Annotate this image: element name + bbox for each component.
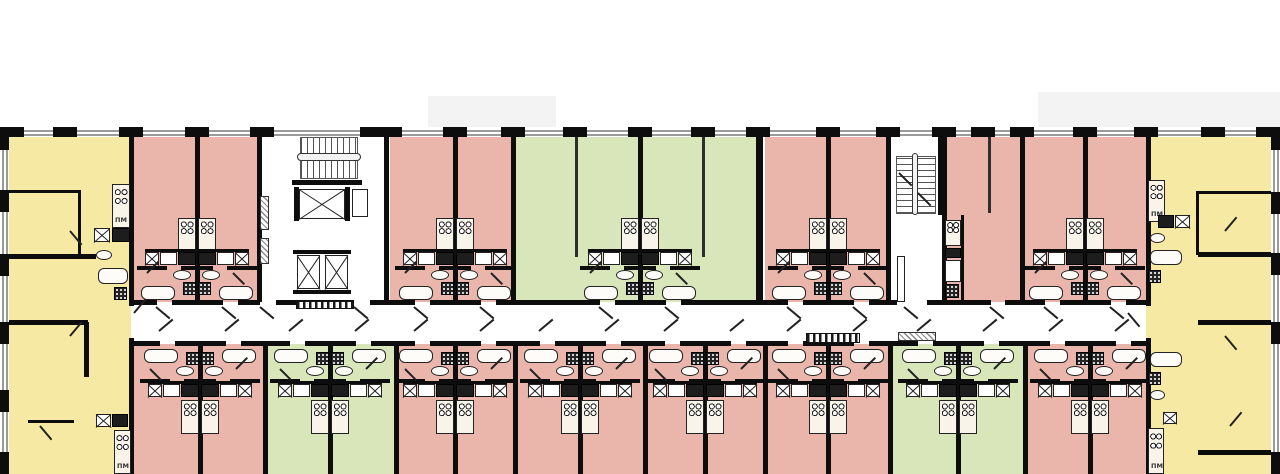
kitchen-cabinet-icon [418, 384, 435, 397]
stove-icon [959, 400, 977, 434]
wall-pier [0, 322, 9, 344]
stove-icon [561, 400, 579, 434]
sink-unit-icon [1066, 252, 1084, 265]
wall-pier [746, 127, 770, 137]
wall-pier [53, 127, 77, 137]
stove-icon [436, 218, 454, 252]
shower-icon [626, 282, 639, 295]
kitchen-cabinet-icon [163, 384, 180, 397]
toilet-icon [202, 270, 220, 280]
corridor-wall [555, 341, 606, 346]
sink-unit-icon [561, 384, 579, 397]
bathroom-wall [1115, 266, 1145, 270]
interior-wall [938, 130, 943, 215]
sink-unit-icon [178, 252, 196, 265]
interior-wall [1198, 252, 1280, 257]
corridor-wall [238, 300, 261, 305]
kitchen-cabinet-icon [1105, 252, 1122, 265]
bathtub-icon [524, 349, 558, 363]
toilet-icon [804, 270, 822, 280]
shower-icon [456, 282, 469, 295]
unit-divider-wall [394, 341, 399, 474]
stove-icon [945, 220, 961, 246]
bathtub-icon [1150, 250, 1182, 265]
wall-pier [378, 127, 402, 137]
wall-pier [1271, 322, 1280, 344]
washer-label: ПМ [115, 217, 127, 224]
shower-icon [814, 352, 827, 365]
kitchen-cabinet-icon [600, 384, 617, 397]
kitchen-cabinet-icon [921, 384, 938, 397]
washer-stove-column-icon: ПМ [114, 430, 131, 474]
kitchen-cabinet-icon [791, 252, 808, 265]
washer-label: ПМ [1151, 463, 1163, 470]
bathtub-icon [772, 349, 806, 363]
unit-divider-wall [638, 130, 643, 302]
corridor-wall [869, 300, 898, 305]
room-partition-wall [575, 135, 578, 257]
wall-pier [1271, 253, 1280, 275]
sink-unit-icon [686, 384, 704, 397]
toilet-icon [306, 366, 324, 376]
toilet-icon [96, 250, 112, 260]
toilet-icon [616, 270, 634, 280]
kitchen-cabinet-icon [603, 252, 620, 265]
vent-shaft-icon [898, 332, 936, 341]
toilet-icon [1150, 233, 1165, 243]
shower-icon [641, 282, 654, 295]
toilet-icon [833, 270, 851, 280]
toilet-icon [963, 366, 981, 376]
sink-unit-icon [1091, 384, 1109, 397]
kitchen-cabinet-icon [848, 384, 865, 397]
washer-label: ПМ [117, 463, 129, 470]
storage-shelf-icon [296, 301, 354, 309]
wall-pier [932, 127, 956, 137]
toilet-icon [710, 366, 728, 376]
unit-divider-wall [195, 130, 200, 302]
bathtub-icon [1034, 349, 1068, 363]
stove-icon [641, 218, 659, 252]
bathtub-icon [477, 286, 511, 300]
shower-icon [186, 352, 199, 365]
wall-pier [0, 128, 9, 150]
sink-unit-icon [809, 384, 827, 397]
shower-icon [814, 282, 827, 295]
shower-icon [1076, 352, 1089, 365]
stove-icon [181, 400, 199, 434]
wall-pier [1010, 127, 1034, 137]
bathtub-icon [1112, 349, 1146, 363]
interior-wall [1198, 450, 1280, 455]
sink-unit-icon [829, 252, 847, 265]
unit-divider-wall [263, 341, 268, 474]
wall-pier [0, 190, 9, 212]
shower-icon [959, 352, 972, 365]
sink-unit-icon [641, 252, 659, 265]
sink-unit-icon [1158, 215, 1174, 228]
vent-shaft-icon [260, 238, 269, 264]
unit-divider-wall [1083, 130, 1088, 302]
bathroom-wall [485, 266, 515, 270]
interior-wall [294, 187, 299, 221]
bathroom-wall [670, 266, 700, 270]
wall-pier [0, 254, 9, 276]
sink-unit-icon [201, 384, 219, 397]
interior-wall [292, 180, 362, 185]
shower-icon [944, 352, 957, 365]
stove-icon [1086, 218, 1104, 252]
bathroom-wall [227, 266, 257, 270]
corridor-wall [1060, 300, 1111, 305]
interior-wall [28, 420, 74, 423]
corridor-wall [1065, 341, 1116, 346]
bathtub-icon [477, 349, 511, 363]
sink-unit-icon [1086, 252, 1104, 265]
bathtub-icon [399, 286, 433, 300]
shower-icon [829, 352, 842, 365]
toilet-icon [934, 366, 952, 376]
shower-icon [829, 282, 842, 295]
stove-icon [311, 400, 329, 434]
shower-icon [945, 284, 959, 298]
corridor-wall [933, 341, 984, 346]
sink-unit-icon [939, 384, 957, 397]
interior-wall [293, 250, 351, 254]
corridor-wall [1005, 300, 1045, 305]
stair-rail-icon [297, 153, 361, 161]
stove-icon [706, 400, 724, 434]
unit-divider-wall [513, 341, 518, 474]
window-glass-line [1277, 128, 1279, 474]
corridor-wall [681, 300, 788, 305]
window-glass-line [6, 128, 8, 474]
wall-pier [876, 127, 900, 137]
unit-divider-wall [1023, 341, 1028, 474]
toilet-icon [460, 366, 478, 376]
corridor-wall [241, 341, 290, 346]
interior-wall [1198, 191, 1280, 194]
floor-plan: ПМПМПМПМ [0, 0, 1280, 474]
bathtub-icon [584, 286, 618, 300]
unit-divider-wall [1020, 130, 1025, 302]
wall-pier [1134, 127, 1158, 137]
toilet-icon [681, 366, 699, 376]
wall-pier [1271, 452, 1280, 474]
bathtub-icon [772, 286, 806, 300]
corridor-wall [621, 341, 665, 346]
kitchen-cabinet-icon [293, 384, 310, 397]
bathtub-icon [850, 349, 884, 363]
unit-divider-wall [384, 130, 389, 302]
interior-wall [78, 190, 81, 256]
toilet-icon [431, 366, 449, 376]
bathtub-icon [850, 286, 884, 300]
interior-wall [345, 187, 350, 221]
kitchen-cabinet-icon [1110, 384, 1127, 397]
shower-icon [331, 352, 344, 365]
stove-icon [621, 218, 639, 252]
unit-divider-wall [888, 341, 893, 474]
corridor-wall [172, 300, 223, 305]
interior-wall [293, 290, 351, 294]
cabinet-icon [897, 256, 905, 302]
toilet-icon [645, 270, 663, 280]
kitchen-cabinet-icon [660, 252, 677, 265]
bathtub-icon [1029, 286, 1063, 300]
wall-pier [816, 127, 840, 137]
stove-icon [1071, 400, 1089, 434]
shower-icon [114, 287, 127, 300]
bathtub-icon [662, 286, 696, 300]
shower-icon [566, 352, 579, 365]
corridor-wall [496, 300, 600, 305]
corridor-wall [131, 341, 160, 346]
bathtub-icon [98, 268, 128, 284]
bathtub-icon [141, 286, 175, 300]
toilet-icon [1066, 366, 1084, 376]
stove-icon [809, 400, 827, 434]
unit-divider-wall [511, 130, 516, 302]
corridor-wall [869, 341, 918, 346]
corridor-wall [430, 341, 481, 346]
shower-icon [1148, 372, 1161, 385]
sink-unit-icon [809, 252, 827, 265]
corridor-wall [1126, 300, 1147, 305]
interior-wall [1198, 320, 1280, 325]
kitchen-cabinet-icon [220, 384, 237, 397]
sink-unit-icon [959, 384, 977, 397]
stove-icon [331, 400, 349, 434]
shower-icon [1071, 282, 1084, 295]
corridor-wall [615, 300, 666, 305]
sink-unit-icon [436, 252, 454, 265]
stove-icon [1091, 400, 1109, 434]
room-partition-wall [988, 135, 991, 213]
shower-icon [183, 282, 196, 295]
sink-unit-icon [112, 228, 130, 242]
corridor-wall [305, 341, 356, 346]
wall-pier [0, 390, 9, 412]
wall-pier [185, 127, 209, 137]
interior-wall [1196, 191, 1199, 255]
bathtub-icon [219, 286, 253, 300]
wall-pier [0, 452, 9, 474]
kitchen-cabinet-icon [725, 384, 742, 397]
sink-unit-icon [456, 384, 474, 397]
bathtub-icon [144, 349, 178, 363]
corridor-wall [999, 341, 1050, 346]
stove-icon [436, 400, 454, 434]
stove-icon [178, 218, 196, 252]
toilet-icon [585, 366, 603, 376]
bathtub-icon [727, 349, 761, 363]
stove-icon [198, 218, 216, 252]
kitchen-cabinet-icon [160, 252, 177, 265]
corridor-wall [370, 300, 415, 305]
shower-icon [441, 282, 454, 295]
wall-pier [501, 127, 525, 137]
stove-icon [939, 400, 957, 434]
unit-divider-wall [756, 130, 763, 302]
shower-icon [1148, 270, 1161, 283]
sink-unit-icon [456, 252, 474, 265]
window-glass-line [2, 128, 4, 474]
kitchen-cabinet-icon [668, 384, 685, 397]
balcony-slab-shadow [1038, 92, 1280, 128]
shower-icon [1091, 352, 1104, 365]
wall-pier [250, 127, 274, 137]
toilet-icon [804, 366, 822, 376]
unit-divider-wall [886, 130, 891, 302]
kitchen-cabinet-icon [978, 384, 995, 397]
vent-shaft-icon [260, 196, 269, 230]
toilet-icon [1090, 270, 1108, 280]
stove-icon [201, 400, 219, 434]
kitchen-cabinet-icon [791, 384, 808, 397]
shower-icon [1086, 282, 1099, 295]
wall-pier [1271, 192, 1280, 214]
kitchen-cabinet-icon [418, 252, 435, 265]
sink-unit-icon [198, 252, 216, 265]
interior-wall [84, 322, 89, 377]
stove-icon [456, 400, 474, 434]
interior-wall [0, 320, 88, 325]
wall-pier [971, 127, 995, 137]
room-partition-wall [702, 135, 705, 257]
stove-icon [809, 218, 827, 252]
shower-icon [201, 352, 214, 365]
corridor-wall [803, 300, 854, 305]
wall-pier [563, 127, 587, 137]
sink-unit-icon [112, 414, 128, 427]
bathtub-icon [980, 349, 1014, 363]
toilet-icon [833, 366, 851, 376]
window-glass-line [1273, 128, 1275, 474]
corridor-wall [430, 300, 481, 305]
balcony-slab-shadow [428, 96, 556, 128]
kitchen-cabinet-icon [475, 384, 492, 397]
wall-pier [1271, 128, 1280, 150]
bathtub-icon [399, 349, 433, 363]
bathtub-icon [1150, 352, 1182, 367]
sink-unit-icon [945, 248, 961, 258]
corridor-wall [1131, 341, 1147, 346]
bathtub-icon [649, 349, 683, 363]
interior-wall [961, 215, 964, 303]
corridor-wall [371, 341, 415, 346]
washer-stove-column-icon: ПМ [1148, 428, 1164, 474]
toilet-icon [556, 366, 574, 376]
shower-icon [706, 352, 719, 365]
kitchen-cabinet-icon [1053, 384, 1070, 397]
unit-divider-wall [763, 341, 768, 474]
corridor-wall [680, 341, 731, 346]
wall-pier [628, 127, 652, 137]
kitchen-cabinet-icon [543, 384, 560, 397]
toilet-icon [1095, 366, 1113, 376]
bathroom-wall [858, 266, 888, 270]
cabinet-icon [945, 260, 961, 282]
corridor-wall [927, 300, 991, 305]
bathtub-icon [274, 349, 308, 363]
sink-unit-icon [621, 252, 639, 265]
bathtub-icon [352, 349, 386, 363]
corridor-wall [175, 341, 226, 346]
stove-icon [829, 400, 847, 434]
unit-divider-wall [826, 130, 831, 302]
sink-unit-icon [311, 384, 329, 397]
shower-icon [456, 352, 469, 365]
kitchen-cabinet-icon [217, 252, 234, 265]
toilet-icon [173, 270, 191, 280]
stove-icon [581, 400, 599, 434]
stove-icon [686, 400, 704, 434]
toilet-icon [1150, 390, 1165, 400]
wall-pier [1073, 127, 1097, 137]
toilet-icon [176, 366, 194, 376]
sink-unit-icon [181, 384, 199, 397]
toilet-icon [431, 270, 449, 280]
sink-unit-icon [581, 384, 599, 397]
sink-unit-icon [1071, 384, 1089, 397]
bathtub-icon [222, 349, 256, 363]
sink-unit-icon [436, 384, 454, 397]
unit-divider-wall [453, 130, 458, 302]
shower-icon [198, 282, 211, 295]
toilet-icon [1061, 270, 1079, 280]
cabinet-icon [352, 189, 368, 217]
wall-pier [691, 127, 715, 137]
shower-icon [441, 352, 454, 365]
unit-divider-wall [643, 341, 648, 474]
kitchen-cabinet-icon [350, 384, 367, 397]
interior-wall [0, 254, 96, 259]
interior-wall [0, 190, 80, 193]
stove-icon [456, 218, 474, 252]
kitchen-cabinet-icon [848, 252, 865, 265]
storage-shelf-icon [806, 333, 860, 343]
shower-icon [581, 352, 594, 365]
kitchen-cabinet-icon [475, 252, 492, 265]
wall-pier [443, 127, 467, 137]
corridor-wall [746, 341, 788, 346]
stove-icon [829, 218, 847, 252]
sink-unit-icon [331, 384, 349, 397]
bathtub-icon [1107, 286, 1141, 300]
stair-rail-icon [912, 153, 918, 215]
sink-unit-icon [706, 384, 724, 397]
stove-icon [1066, 218, 1084, 252]
washer-stove-column-icon: ПМ [112, 184, 130, 228]
toilet-icon [335, 366, 353, 376]
shower-icon [316, 352, 329, 365]
shower-icon [691, 352, 704, 365]
toilet-icon [460, 270, 478, 280]
wall-pier [1201, 127, 1225, 137]
wall-pier [119, 127, 143, 137]
kitchen-cabinet-icon [1048, 252, 1065, 265]
bathtub-icon [602, 349, 636, 363]
toilet-icon [205, 366, 223, 376]
bathtub-icon [902, 349, 936, 363]
sink-unit-icon [829, 384, 847, 397]
corridor-wall [496, 341, 540, 346]
